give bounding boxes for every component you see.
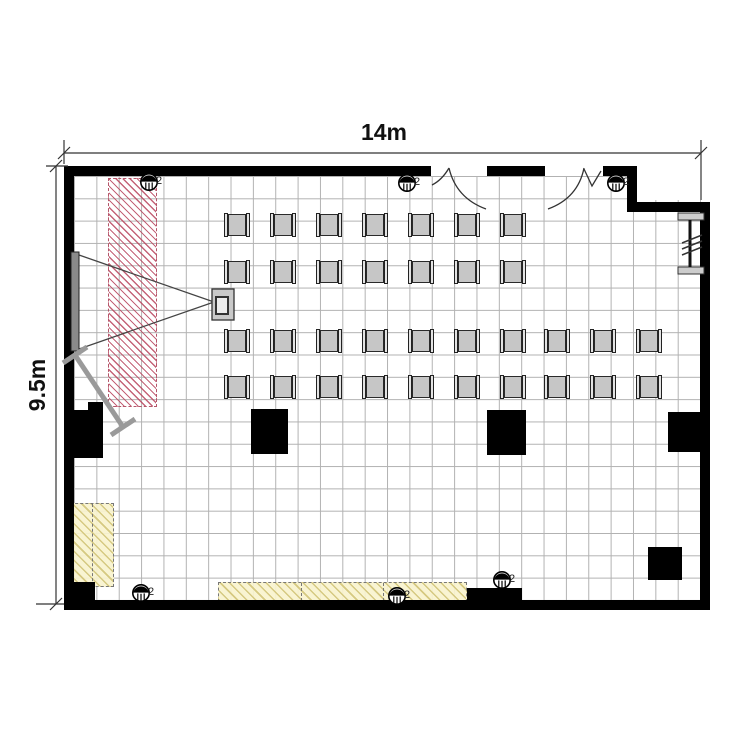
chair [362, 329, 388, 353]
chair [224, 329, 250, 353]
power-outlet: 2 [492, 570, 512, 590]
power-outlet: 2 [397, 173, 417, 193]
chair [224, 260, 250, 284]
chair-seat [594, 330, 612, 352]
chair [270, 375, 296, 399]
chair [224, 375, 250, 399]
chair [454, 213, 480, 237]
chair [316, 260, 342, 284]
chair-seat [320, 330, 338, 352]
chair-armrest [246, 213, 250, 237]
chair-seat [548, 376, 566, 398]
chair-armrest [522, 260, 526, 284]
chair-seat [458, 376, 476, 398]
chair-armrest [384, 329, 388, 353]
column [668, 412, 704, 452]
chair-armrest [384, 213, 388, 237]
chair-seat [412, 214, 430, 236]
chair-seat [366, 376, 384, 398]
chair [590, 329, 616, 353]
chair-armrest [292, 375, 296, 399]
chair-seat [412, 376, 430, 398]
chair-armrest [658, 329, 662, 353]
chair [408, 329, 434, 353]
zone-divider [383, 583, 384, 601]
chair-seat [504, 214, 522, 236]
chair [316, 329, 342, 353]
chair-seat [366, 214, 384, 236]
chair-armrest [430, 375, 434, 399]
chair [316, 213, 342, 237]
chair [636, 329, 662, 353]
chair-seat [228, 330, 246, 352]
chair-armrest [430, 260, 434, 284]
chair-seat [594, 376, 612, 398]
column [467, 588, 522, 606]
chair [454, 329, 480, 353]
chair [316, 375, 342, 399]
chair-seat [458, 330, 476, 352]
chair-armrest [246, 260, 250, 284]
chair [362, 213, 388, 237]
chair-seat [640, 330, 658, 352]
chair-armrest [384, 260, 388, 284]
chair-armrest [246, 375, 250, 399]
column [64, 582, 95, 608]
chair-seat [366, 261, 384, 283]
projection-zone-hatch [108, 178, 157, 407]
chair-seat [274, 330, 292, 352]
chair-seat [320, 214, 338, 236]
outlet-count-label: 2 [404, 590, 410, 601]
chair-seat [228, 261, 246, 283]
power-outlet: 2 [387, 586, 407, 606]
chair-armrest [612, 329, 616, 353]
chair-armrest [338, 375, 342, 399]
chair [544, 375, 570, 399]
chair [270, 329, 296, 353]
chair [408, 213, 434, 237]
chair [500, 375, 526, 399]
chair-armrest [430, 329, 434, 353]
chair [454, 260, 480, 284]
chair-armrest [658, 375, 662, 399]
chair [270, 260, 296, 284]
chair-armrest [430, 213, 434, 237]
chair [270, 213, 296, 237]
outlet-count-label: 2 [623, 177, 629, 188]
chair-armrest [522, 375, 526, 399]
storage-zone-left [70, 503, 114, 587]
chair [500, 329, 526, 353]
chair-armrest [476, 375, 480, 399]
chair-seat [320, 261, 338, 283]
outlet-count-label: 2 [156, 176, 162, 187]
chair [544, 329, 570, 353]
chair-seat [640, 376, 658, 398]
chair-armrest [338, 260, 342, 284]
column [251, 409, 288, 454]
chair-armrest [476, 213, 480, 237]
chair-armrest [384, 375, 388, 399]
chair [362, 260, 388, 284]
column [88, 402, 103, 411]
chair-armrest [476, 260, 480, 284]
power-outlet: 2 [139, 172, 159, 192]
chair-seat [274, 376, 292, 398]
chair-seat [548, 330, 566, 352]
chair-seat [504, 330, 522, 352]
chair [500, 213, 526, 237]
chair-seat [274, 214, 292, 236]
dimension-left-label: 9.5m [24, 352, 50, 418]
chair-seat [412, 330, 430, 352]
chair [408, 375, 434, 399]
power-outlet: 2 [606, 173, 626, 193]
outlet-count-label: 2 [509, 574, 515, 585]
chair-armrest [246, 329, 250, 353]
chair [408, 260, 434, 284]
chair [636, 375, 662, 399]
chair-seat [458, 261, 476, 283]
outlet-count-label: 2 [148, 587, 154, 598]
zone-divider [92, 504, 93, 586]
chair-armrest [338, 213, 342, 237]
outlet-count-label: 2 [414, 177, 420, 188]
column [487, 410, 526, 455]
chair-seat [504, 261, 522, 283]
chair-seat [458, 214, 476, 236]
chair-armrest [522, 213, 526, 237]
chair-armrest [566, 375, 570, 399]
chair-seat [228, 376, 246, 398]
storage-zone-bottom [218, 582, 467, 602]
chair-armrest [522, 329, 526, 353]
chair [590, 375, 616, 399]
chair-armrest [338, 329, 342, 353]
chair-armrest [292, 329, 296, 353]
chair-seat [412, 261, 430, 283]
chair-armrest [612, 375, 616, 399]
chair-seat [228, 214, 246, 236]
chair-seat [366, 330, 384, 352]
column [648, 547, 682, 580]
chair-seat [274, 261, 292, 283]
chair [362, 375, 388, 399]
chair-seat [504, 376, 522, 398]
chair-armrest [292, 213, 296, 237]
chair-armrest [566, 329, 570, 353]
power-outlet: 2 [131, 583, 151, 603]
chair [500, 260, 526, 284]
column [67, 410, 103, 458]
chair-armrest [292, 260, 296, 284]
chair-armrest [476, 329, 480, 353]
chair-seat [320, 376, 338, 398]
chair [454, 375, 480, 399]
chair [224, 213, 250, 237]
dimension-top-label: 14m [352, 119, 416, 146]
floor-plan: 222222 14m 9.5m [0, 0, 750, 750]
zone-divider [301, 583, 302, 601]
